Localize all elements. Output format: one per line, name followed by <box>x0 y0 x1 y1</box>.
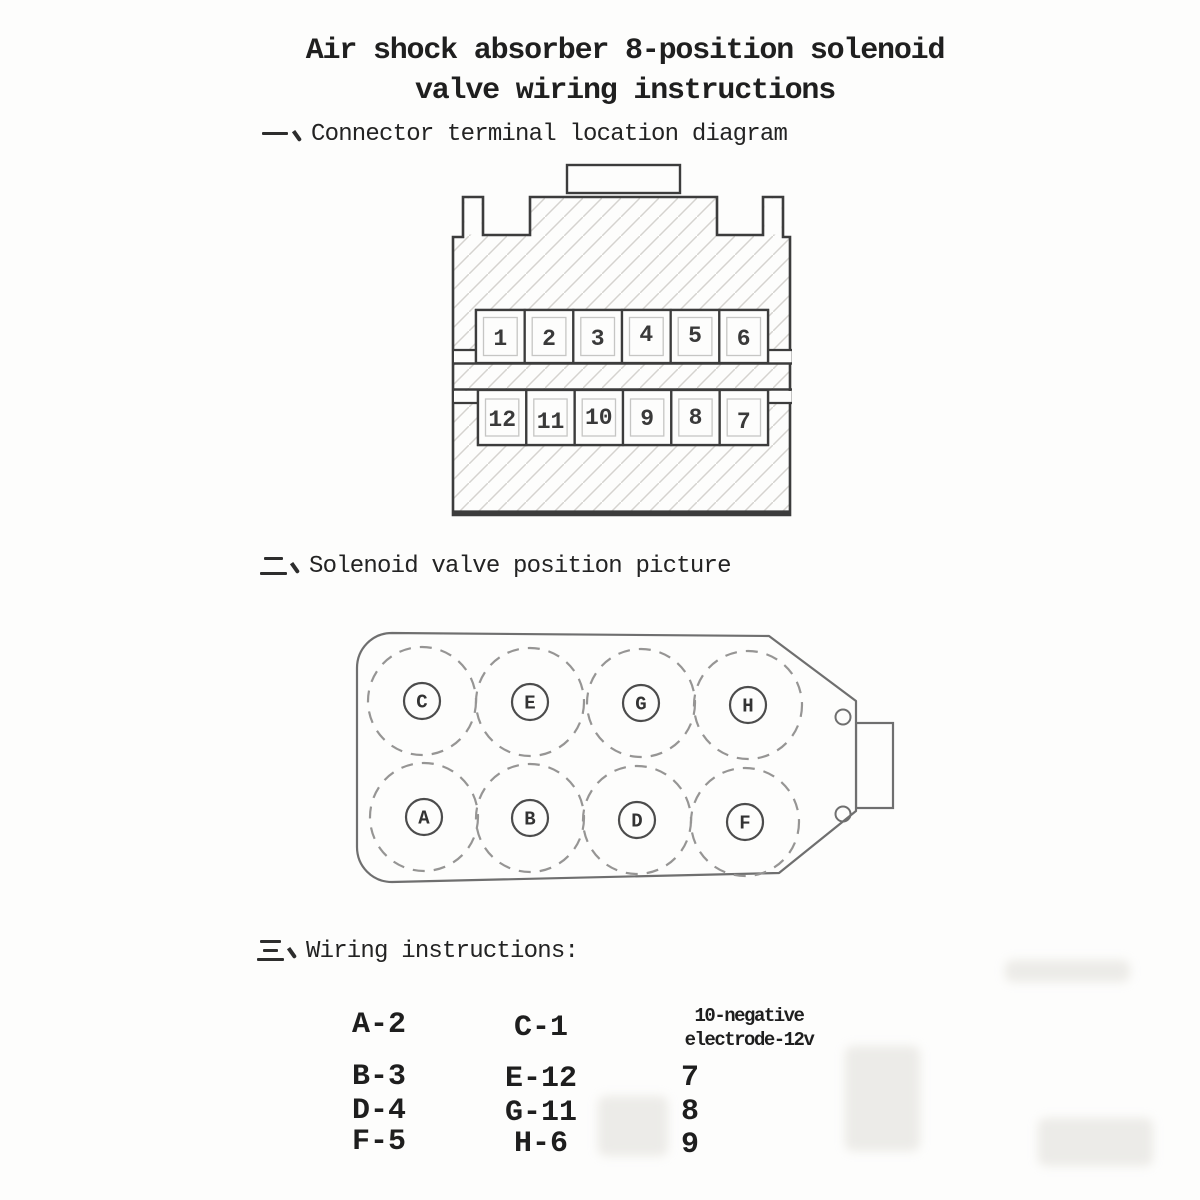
svg-text:7: 7 <box>737 409 751 435</box>
top-band-left-channel <box>454 351 477 363</box>
bleed-through-mark <box>845 1046 920 1151</box>
svg-text:H: H <box>742 696 753 718</box>
terminal-cell: 4 <box>622 310 671 363</box>
svg-text:6: 6 <box>737 326 751 352</box>
svg-text:D: D <box>631 811 642 833</box>
bottom-band-right-channel <box>766 391 791 402</box>
wiring-pair: B-3 <box>352 1060 406 1094</box>
wiring-pair: H-6 <box>491 1127 591 1161</box>
wiring-terminal: 8 <box>672 1095 708 1129</box>
svg-text:11: 11 <box>537 409 565 435</box>
terminal-cell: 5 <box>671 310 720 363</box>
terminal-cell: 3 <box>573 310 622 363</box>
page-title-line-2: valve wiring instructions <box>25 71 1200 111</box>
right-tab-interior <box>765 199 782 235</box>
cjk-numeral-one <box>261 120 289 135</box>
ideographic-comma <box>292 130 302 142</box>
svg-text:F: F <box>739 813 750 835</box>
svg-text:4: 4 <box>639 322 653 348</box>
terminal-cell: 12 <box>478 390 526 445</box>
solenoid-valve-diagram: C E G H A <box>345 615 905 905</box>
svg-text:2: 2 <box>542 326 556 352</box>
connector-latch <box>567 165 680 193</box>
cjk-bar <box>264 557 283 560</box>
cjk-bar <box>263 949 278 952</box>
valve-body-outline <box>357 633 856 882</box>
terminal-row-top: 1 2 3 4 5 <box>476 310 768 363</box>
wiring-pair: E-12 <box>491 1062 591 1096</box>
terminal-cell: 11 <box>526 390 574 445</box>
svg-text:1: 1 <box>493 326 507 352</box>
bleed-through-mark <box>1005 960 1130 982</box>
terminal-cell: 6 <box>719 310 768 363</box>
svg-text:3: 3 <box>591 326 605 352</box>
bottom-band-left-channel <box>454 391 479 402</box>
terminal-cell: 7 <box>720 390 768 445</box>
ideographic-comma <box>287 947 297 959</box>
top-band-right-channel <box>768 351 791 363</box>
svg-text:C: C <box>416 692 427 714</box>
negative-electrode-note-line-2: electrode-12v <box>664 1028 834 1052</box>
svg-text:A: A <box>418 808 430 830</box>
section-3-heading-text: Wiring instructions: <box>306 937 578 967</box>
wiring-pair: C-1 <box>491 1011 591 1045</box>
section-2-heading-text: Solenoid valve position picture <box>309 552 731 582</box>
svg-text:5: 5 <box>688 323 702 349</box>
page-title: Air shock absorber 8-position solenoid v… <box>25 31 1200 111</box>
scanned-instruction-page: Air shock absorber 8-position solenoid v… <box>0 0 1200 1200</box>
cjk-bar <box>260 572 287 575</box>
section-1-heading-text: Connector terminal location diagram <box>311 120 787 150</box>
left-tab-interior <box>465 199 482 235</box>
cjk-numeral-three <box>256 937 284 961</box>
svg-text:8: 8 <box>689 405 703 431</box>
terminal-cell: 2 <box>525 310 574 363</box>
terminal-cell: 10 <box>575 390 623 445</box>
cjk-bar <box>257 958 284 961</box>
negative-electrode-note: 10-negative electrode-12v <box>664 1004 834 1052</box>
negative-electrode-note-line-1: 10-negative <box>664 1004 834 1028</box>
cjk-numeral-two <box>259 552 287 575</box>
wiring-pair: A-2 <box>352 1008 406 1042</box>
terminal-cell: 1 <box>476 310 525 363</box>
valve-connector-tab <box>856 723 893 808</box>
svg-text:10: 10 <box>585 405 613 431</box>
connector-terminal-diagram: 1 2 3 4 5 <box>450 160 795 520</box>
wiring-terminal: 9 <box>672 1128 708 1162</box>
bleed-through-mark <box>598 1096 668 1156</box>
wiring-pair: F-5 <box>352 1125 406 1159</box>
bleed-through-mark <box>1038 1118 1153 1166</box>
page-title-line-1: Air shock absorber 8-position solenoid <box>25 31 1200 71</box>
svg-text:E: E <box>524 693 535 715</box>
section-3-heading: Wiring instructions: <box>256 937 578 967</box>
ideographic-comma <box>290 562 300 574</box>
terminal-row-bottom: 12 11 10 9 8 <box>478 390 768 445</box>
section-1-heading: Connector terminal location diagram <box>261 120 787 150</box>
wiring-pair: D-4 <box>352 1094 406 1128</box>
wiring-terminal: 7 <box>672 1061 708 1095</box>
terminal-cell: 9 <box>623 390 671 445</box>
wiring-pair: G-11 <box>491 1096 591 1130</box>
cjk-bar <box>262 132 288 135</box>
section-2-heading: Solenoid valve position picture <box>259 552 731 582</box>
svg-text:12: 12 <box>488 407 516 433</box>
svg-text:G: G <box>635 694 646 716</box>
cjk-bar <box>260 940 281 943</box>
svg-text:B: B <box>524 809 535 831</box>
terminal-cell: 8 <box>671 390 719 445</box>
svg-text:9: 9 <box>640 406 654 432</box>
